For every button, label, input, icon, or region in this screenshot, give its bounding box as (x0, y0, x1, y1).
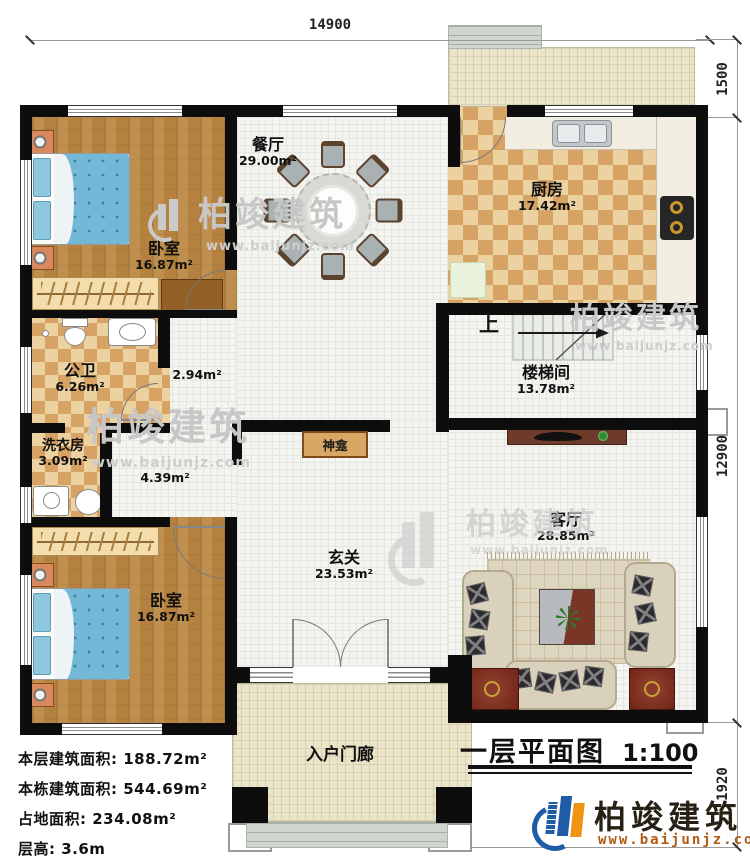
window (545, 105, 633, 117)
room-label-dining: 餐厅 29.00m² (239, 136, 297, 169)
cushion (628, 631, 649, 652)
cushion (558, 669, 580, 691)
wall (225, 517, 237, 723)
wall (225, 105, 237, 270)
dining-table (307, 185, 359, 237)
window (696, 335, 708, 390)
kitchen-mat (450, 262, 486, 298)
room-label-porch: 入户门廊 (306, 746, 374, 766)
stairs-up-label: 上 (479, 313, 499, 336)
window (283, 105, 397, 117)
window (250, 667, 293, 683)
room-label-kitchen: 厨房 17.42m² (518, 181, 576, 214)
chair (376, 199, 403, 223)
window (20, 487, 32, 523)
porch-column (232, 787, 268, 823)
sink-basin (557, 124, 580, 143)
wardrobe (32, 527, 159, 556)
window (20, 575, 32, 665)
wall (696, 390, 708, 517)
info-block: 本层建筑面积: 188.72m² 本栋建筑面积: 544.69m² 占地面积: … (18, 748, 207, 865)
dimension-line-right (737, 40, 738, 848)
floor-drain-icon (42, 330, 49, 337)
cushion (534, 671, 557, 694)
window (68, 105, 182, 117)
title-underline (468, 772, 692, 774)
red-rug (629, 668, 675, 710)
chair (321, 253, 345, 280)
title-scale: 1:100 (622, 739, 698, 767)
cushion (465, 635, 486, 656)
door-leaf (387, 619, 389, 667)
wall (100, 433, 112, 517)
wall (32, 517, 170, 527)
plant-icon (598, 431, 608, 441)
drawing-title: 一层平面图 1:100 (460, 730, 699, 769)
dimension-ext (708, 722, 737, 723)
dimension-line-top (30, 40, 710, 41)
bath-sink-basin (119, 323, 146, 341)
pillow (33, 636, 51, 675)
info-line: 本栋建筑面积: 544.69m² (18, 778, 207, 799)
dimension-ext (696, 39, 737, 40)
pillow (33, 201, 51, 240)
room-label-foyer: 玄关 23.53m² (315, 549, 373, 582)
window (20, 347, 32, 413)
door-leaf (121, 419, 158, 421)
wardrobe-hangers (41, 532, 151, 551)
wall (436, 303, 449, 432)
wall (448, 105, 460, 167)
wall (158, 318, 170, 368)
wall (20, 265, 32, 347)
window (388, 667, 430, 683)
pillow (33, 158, 51, 197)
wall (32, 423, 65, 433)
wall (696, 627, 708, 723)
chair (264, 199, 291, 223)
room-label-bathroom: 公卫 6.26m² (55, 362, 104, 395)
wall (32, 310, 237, 318)
wall (162, 723, 237, 735)
area-label-hall: 2.94m² (172, 368, 221, 382)
table-plant-icon (556, 606, 580, 630)
dimension-right-middle: 12900 (715, 429, 731, 483)
wall (507, 105, 545, 117)
title-underline (468, 765, 692, 769)
back-porch-steps (448, 25, 542, 49)
info-line: 本层建筑面积: 188.72m² (18, 748, 207, 769)
wall (460, 710, 708, 723)
medallion-icon (484, 681, 500, 697)
wall (102, 423, 170, 433)
red-rug (465, 668, 519, 710)
cushion (583, 666, 604, 687)
lamp-icon (34, 569, 47, 582)
lamp-icon (34, 252, 47, 265)
info-line: 层高: 3.6m (18, 838, 207, 859)
tv-icon (534, 432, 582, 441)
wall (633, 105, 708, 117)
cushion (631, 574, 653, 596)
laundry-sink (75, 489, 102, 515)
door-leaf (173, 526, 225, 528)
porch-column (436, 787, 472, 823)
entry-porch-steps (246, 822, 448, 848)
chair (321, 141, 345, 168)
room-label-living: 客厅 28.85m² (537, 511, 595, 544)
washing-machine-drum (43, 492, 60, 509)
info-line: 占地面积: 234.08m² (18, 808, 207, 829)
dimension-top: 14900 (295, 17, 365, 33)
shrine: 神龛 (302, 431, 368, 458)
room-label-bedroom-top: 卧室 16.87m² (135, 240, 193, 273)
room-label-bedroom-bottom: 卧室 16.87m² (137, 592, 195, 625)
burner-icon (670, 201, 683, 214)
cushion (469, 609, 491, 631)
brand-url: www.baijunjz.com (598, 832, 750, 848)
lamp-icon (34, 689, 47, 702)
burner-icon (670, 221, 683, 234)
room-label-laundry: 洗衣房 3.09m² (38, 438, 87, 468)
title-text: 一层平面图 (460, 737, 605, 768)
lamp-icon (34, 136, 47, 149)
wall (20, 523, 32, 575)
brand-logo-icon (532, 792, 590, 852)
window (20, 160, 32, 265)
wall (20, 105, 68, 117)
pillow (33, 593, 51, 632)
medallion-icon (644, 681, 660, 697)
dimension-right-top: 1500 (715, 58, 731, 100)
wardrobe (32, 277, 159, 310)
wall (20, 117, 32, 160)
wall (696, 117, 708, 335)
logo-building-icon (570, 803, 585, 837)
room-label-stairwell: 楼梯间 13.78m² (517, 364, 575, 397)
area-label-corridor: 4.39m² (140, 471, 189, 485)
wall (20, 723, 62, 735)
window (696, 517, 708, 627)
door-leaf (292, 619, 294, 667)
shrine-label: 神龛 (322, 435, 347, 454)
floor-plan-canvas: 神龛 (0, 0, 750, 865)
wardrobe-hangers (41, 282, 151, 304)
sink-basin (584, 124, 607, 143)
wall (448, 418, 696, 430)
cushion (634, 602, 657, 625)
toilet-tank (62, 318, 88, 327)
back-porch (448, 47, 695, 107)
wall (20, 413, 32, 487)
dimension-ext (708, 117, 737, 118)
coffee-table (539, 589, 595, 645)
window (62, 723, 162, 735)
